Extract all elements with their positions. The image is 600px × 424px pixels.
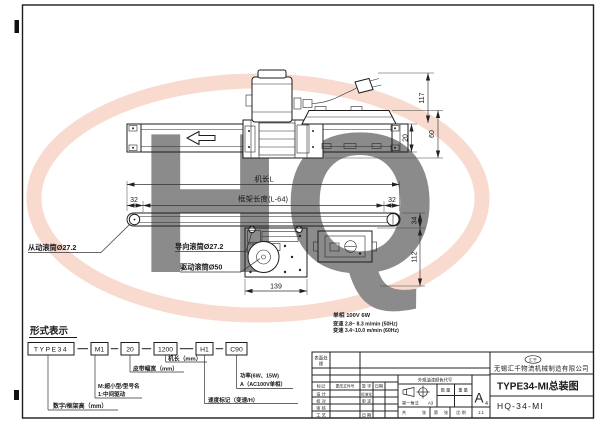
drawing-title: TYPE34-MI总装图 bbox=[497, 380, 579, 393]
callout-speed: 速度标记（变速/H） bbox=[208, 396, 258, 404]
paper-size: A bbox=[474, 391, 483, 406]
weight-header: 重 量 bbox=[458, 387, 468, 394]
dim-machine-length-label: 机长L bbox=[254, 174, 273, 184]
drive-roller bbox=[248, 242, 279, 273]
projection-label: 第一角法 bbox=[402, 400, 419, 407]
trim-mark-top bbox=[15, 20, 20, 33]
row-design: 设 计 bbox=[316, 390, 326, 397]
row-review: 审 核 bbox=[316, 404, 326, 411]
row-check: 校 对 bbox=[316, 397, 326, 404]
dim-34-label: 34 bbox=[412, 217, 419, 225]
dim-112-label: 112 bbox=[412, 251, 419, 262]
callout-model-line2: 1:中间驱动 bbox=[98, 390, 126, 398]
drawing-number: HQ-34-MI bbox=[497, 401, 544, 411]
spec-speed-60hz: 变速 3.4~10.0 m/min (60Hz) bbox=[333, 326, 399, 334]
header-change-no: 更改文件号 bbox=[336, 384, 355, 389]
model-segment-5: C90 bbox=[230, 347, 243, 354]
model-segment-2: 20 bbox=[126, 347, 134, 354]
drawing-sheet: HQ bbox=[0, 0, 600, 424]
paint-code-header: 外观油漆颜色代号 bbox=[418, 377, 452, 384]
driven-roller-label: 从动滚筒Ø27.2 bbox=[28, 243, 76, 252]
spec-speed-50hz: 变速 2.8~ 8.3 m/min (50Hz) bbox=[333, 320, 398, 328]
model-segment-0: TYPE34 bbox=[34, 347, 68, 354]
scale-value: 1:1 bbox=[478, 410, 484, 415]
assembly-drawing-canvas: HQ bbox=[0, 0, 600, 424]
callout-machine-length: 机长（mm） bbox=[168, 355, 202, 363]
model-code-title: 形式表示 bbox=[30, 325, 69, 337]
dim-117-label: 117 bbox=[419, 92, 426, 103]
surface-treatment-line1: 表面处 bbox=[314, 355, 328, 362]
callout-frame-height: 数字/框架高（mm） bbox=[53, 402, 107, 410]
scale-label: 比 例 bbox=[456, 409, 466, 416]
guide-roller bbox=[249, 226, 255, 232]
spec-power: 单相 100V 6W bbox=[333, 311, 371, 319]
drive-unit-top bbox=[243, 120, 323, 158]
callout-power-line2: A（AC100V单相） bbox=[240, 380, 286, 388]
callout-power-line1: 功率(6W、15W) bbox=[240, 372, 279, 380]
model-segment-3: 1200 bbox=[158, 347, 173, 354]
header-mark: 标记 bbox=[317, 383, 326, 390]
callout-model-line1: M:超小型/型号名 bbox=[98, 382, 140, 390]
header-sign: 签 字 bbox=[362, 383, 372, 389]
dim-139-label: 139 bbox=[270, 284, 282, 291]
company-name: 无锡汇千物流机械制造有限公司 bbox=[494, 364, 589, 373]
dim-20-label: 20 bbox=[403, 134, 410, 142]
trim-mark-bottom bbox=[14, 390, 19, 400]
surface-treatment-line2: 理 bbox=[319, 362, 324, 367]
dim-32-left-label: 32 bbox=[130, 197, 138, 204]
projection-size: A3 bbox=[428, 401, 434, 406]
model-segment-4: H1 bbox=[200, 347, 209, 354]
drive-roller-label: 驱动滚筒Ø50 bbox=[180, 263, 222, 272]
row-standard: 标准化 bbox=[361, 391, 372, 396]
row-approve: 审 定 bbox=[362, 397, 372, 404]
qty-header: 数 量 bbox=[441, 387, 451, 394]
callout-belt-width: 皮带幅宽（mm） bbox=[132, 365, 178, 373]
logo-text: 汇千 bbox=[529, 356, 537, 362]
dim-60-label: 60 bbox=[429, 130, 436, 138]
row-process: 工 艺 bbox=[316, 412, 326, 417]
motor-top bbox=[246, 70, 292, 122]
paper-size-sub: 4 bbox=[485, 401, 488, 407]
sheet-no-label: 第 bbox=[434, 409, 438, 416]
guide-roller-label: 导向滚筒Ø27.2 bbox=[175, 242, 223, 251]
dim-32-right-label: 32 bbox=[388, 197, 396, 204]
dim-frame-length-label: 框架长度(L-64) bbox=[238, 194, 289, 204]
model-segment-1: M1 bbox=[95, 347, 105, 354]
sheet-total-label: 共 bbox=[402, 409, 406, 416]
